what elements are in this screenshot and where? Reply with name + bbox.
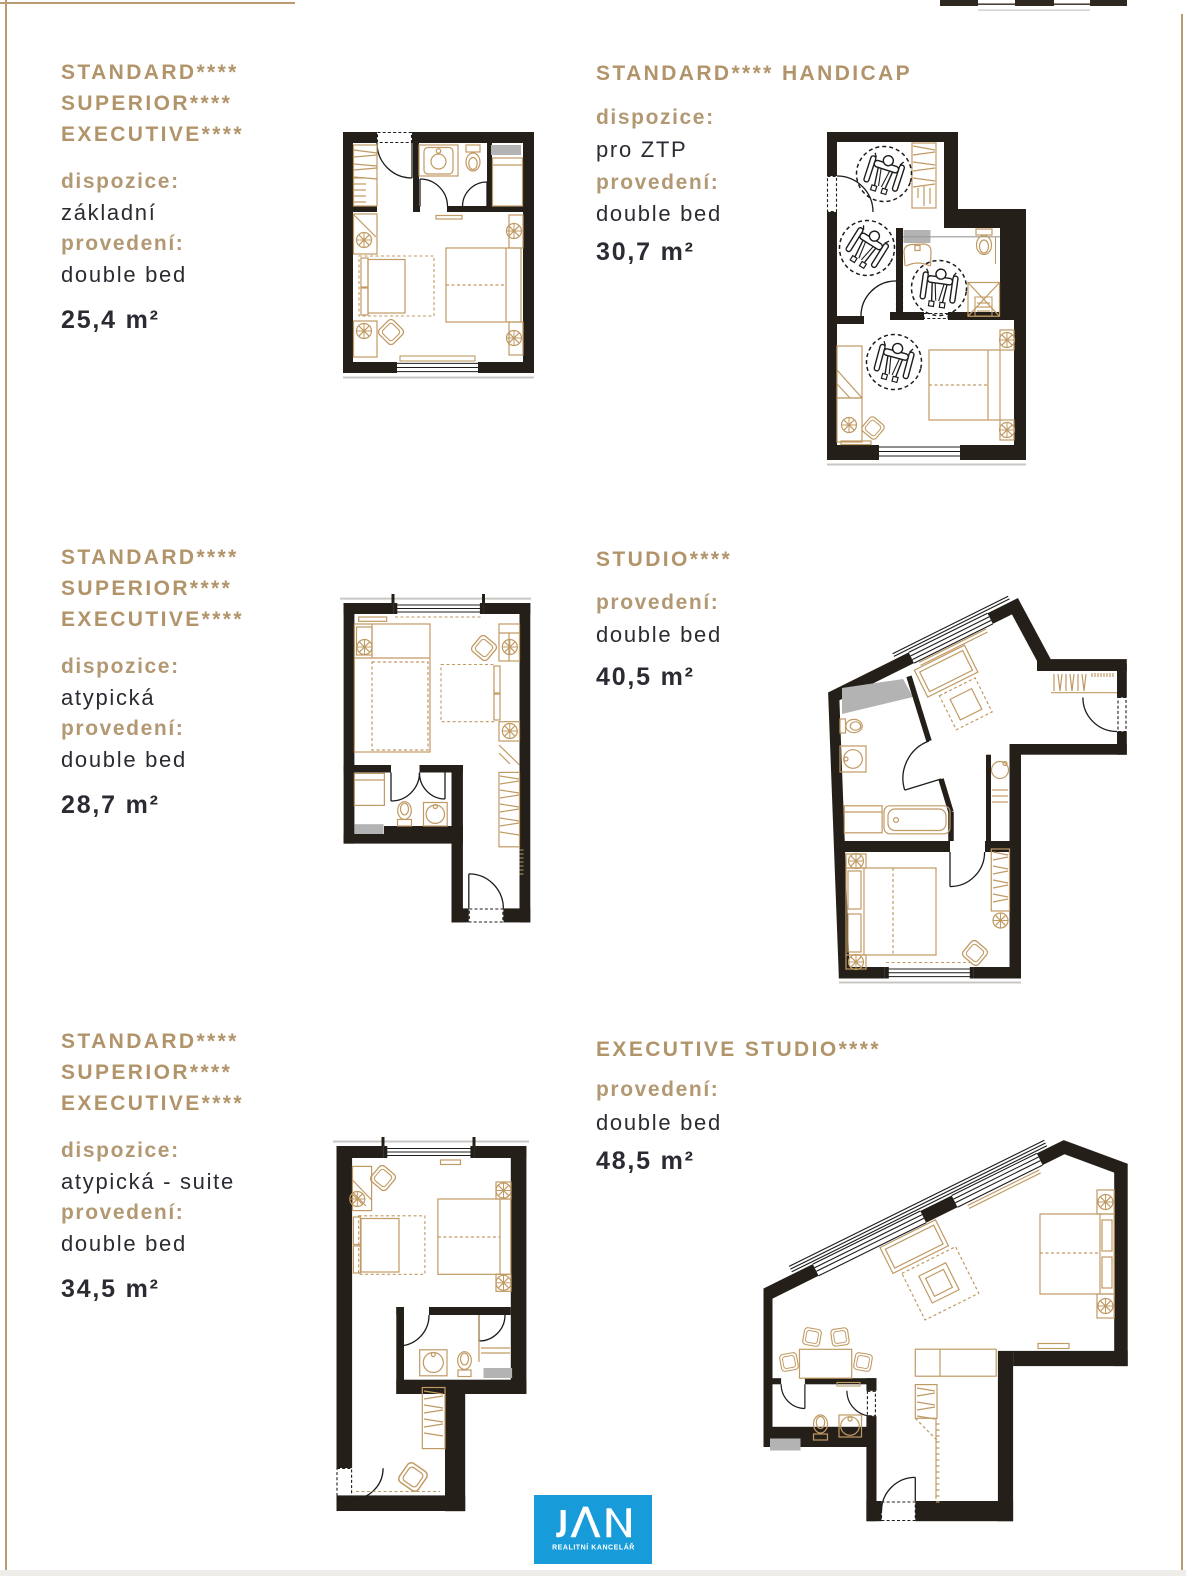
svg-text:REALITNÍ KANCELÁŘ: REALITNÍ KANCELÁŘ: [552, 1543, 635, 1552]
